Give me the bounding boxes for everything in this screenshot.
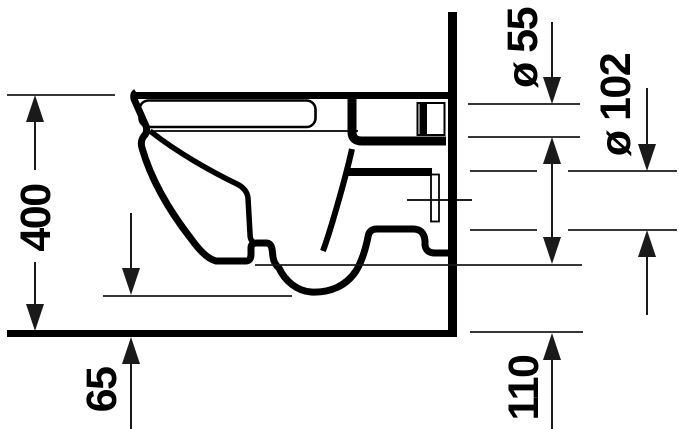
arrow-up-icon bbox=[543, 137, 561, 164]
technical-drawing-canvas: 400 65 ø 55 ø 102 bbox=[0, 0, 679, 429]
flush-spigot-collar bbox=[420, 102, 428, 136]
arrow-down-icon bbox=[543, 237, 561, 264]
dim-overall-height: 400 bbox=[7, 95, 115, 331]
seat-section-outline bbox=[140, 101, 316, 128]
arrow-down-icon bbox=[638, 144, 656, 171]
dim-flush-diameter: ø 55 bbox=[468, 7, 580, 137]
drain-spigot-face bbox=[431, 175, 439, 222]
dim-drain-diameter: ø 102 bbox=[470, 53, 677, 315]
bowl-inner-surface bbox=[150, 131, 254, 242]
toilet-dimension-diagram: 400 65 ø 55 ø 102 bbox=[0, 0, 679, 429]
dim-label-65: 65 bbox=[78, 367, 126, 412]
floor-line bbox=[7, 330, 457, 337]
arrow-up-icon bbox=[122, 337, 140, 364]
arrow-down-icon bbox=[122, 268, 140, 295]
arrow-down-icon bbox=[26, 304, 44, 331]
dim-label-o102: ø 102 bbox=[592, 53, 640, 156]
dim-label-110: 110 bbox=[500, 355, 548, 420]
dim-label-400: 400 bbox=[12, 184, 60, 252]
arrow-up-icon bbox=[26, 95, 44, 122]
arrow-up-icon bbox=[638, 230, 656, 257]
dim-label-o55: ø 55 bbox=[499, 7, 547, 88]
dim-shared-arrows bbox=[543, 137, 561, 264]
trap-weir-wall bbox=[323, 149, 352, 251]
toilet-profile bbox=[134, 92, 472, 292]
wall-line bbox=[448, 12, 457, 337]
